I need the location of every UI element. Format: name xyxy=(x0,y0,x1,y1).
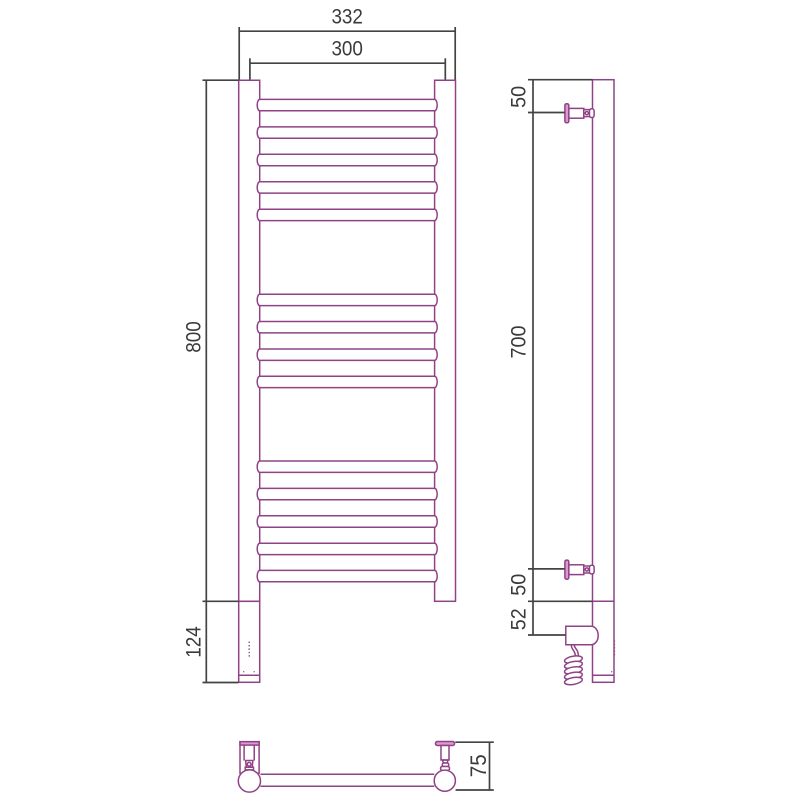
svg-text:52: 52 xyxy=(508,608,531,630)
svg-text:75: 75 xyxy=(466,754,491,777)
svg-text:124: 124 xyxy=(183,626,206,658)
svg-text:50: 50 xyxy=(508,86,531,108)
svg-text:700: 700 xyxy=(508,326,531,359)
svg-text:332: 332 xyxy=(331,6,363,29)
svg-text:50: 50 xyxy=(508,574,531,596)
svg-text:300: 300 xyxy=(331,37,363,60)
svg-text:800: 800 xyxy=(183,321,206,353)
